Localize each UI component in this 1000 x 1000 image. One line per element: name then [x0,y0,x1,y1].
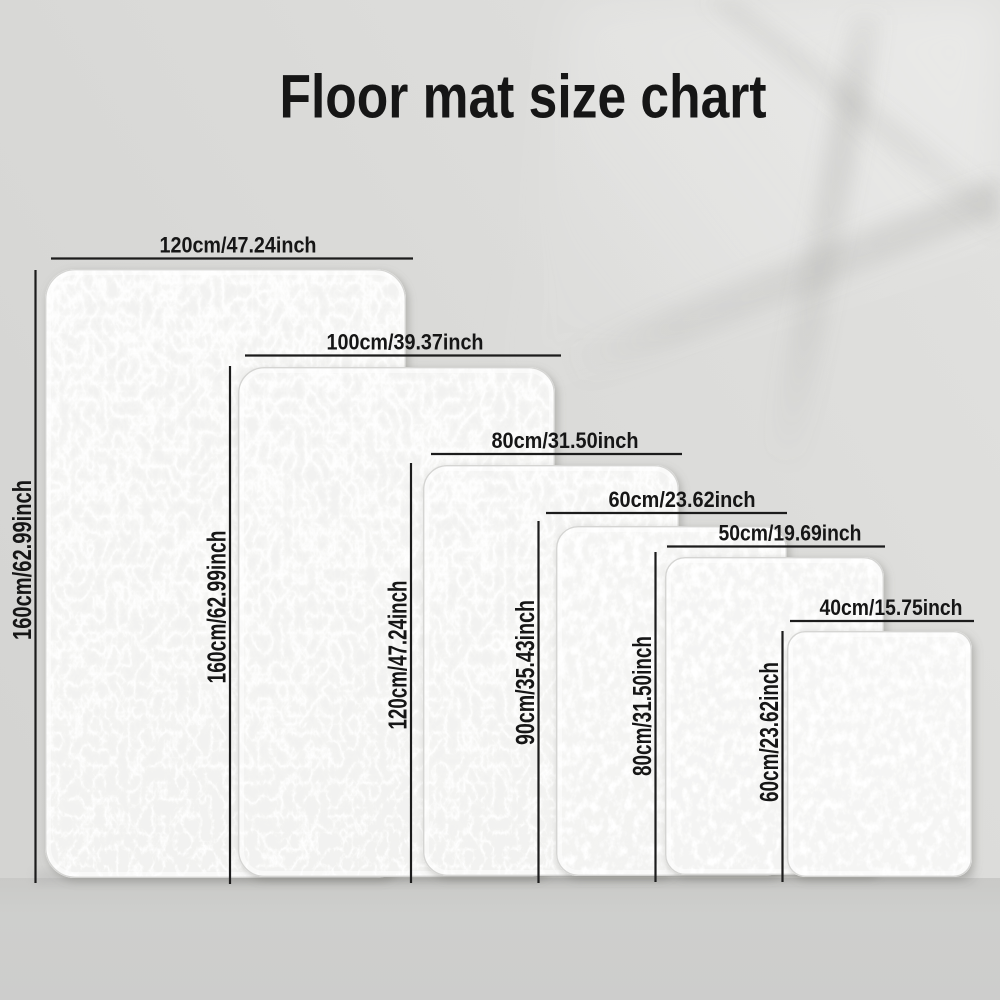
svg-text:160cm/62.99inch: 160cm/62.99inch [204,531,232,684]
svg-text:90cm/35.43inch: 90cm/35.43inch [512,600,540,745]
svg-text:80cm/31.50inch: 80cm/31.50inch [492,428,639,453]
svg-text:120cm/47.24inch: 120cm/47.24inch [385,581,413,730]
svg-text:50cm/19.69inch: 50cm/19.69inch [719,521,862,546]
svg-text:Floor mat size chart: Floor mat size chart [280,63,767,131]
svg-text:100cm/39.37inch: 100cm/39.37inch [327,330,484,355]
svg-text:40cm/15.75inch: 40cm/15.75inch [820,595,963,620]
svg-text:60cm/23.62inch: 60cm/23.62inch [756,662,784,802]
svg-text:120cm/47.24inch: 120cm/47.24inch [160,233,317,258]
svg-text:80cm/31.50inch: 80cm/31.50inch [629,636,657,776]
svg-text:160cm/62.99inch: 160cm/62.99inch [9,480,37,640]
svg-text:60cm/23.62inch: 60cm/23.62inch [609,487,756,512]
